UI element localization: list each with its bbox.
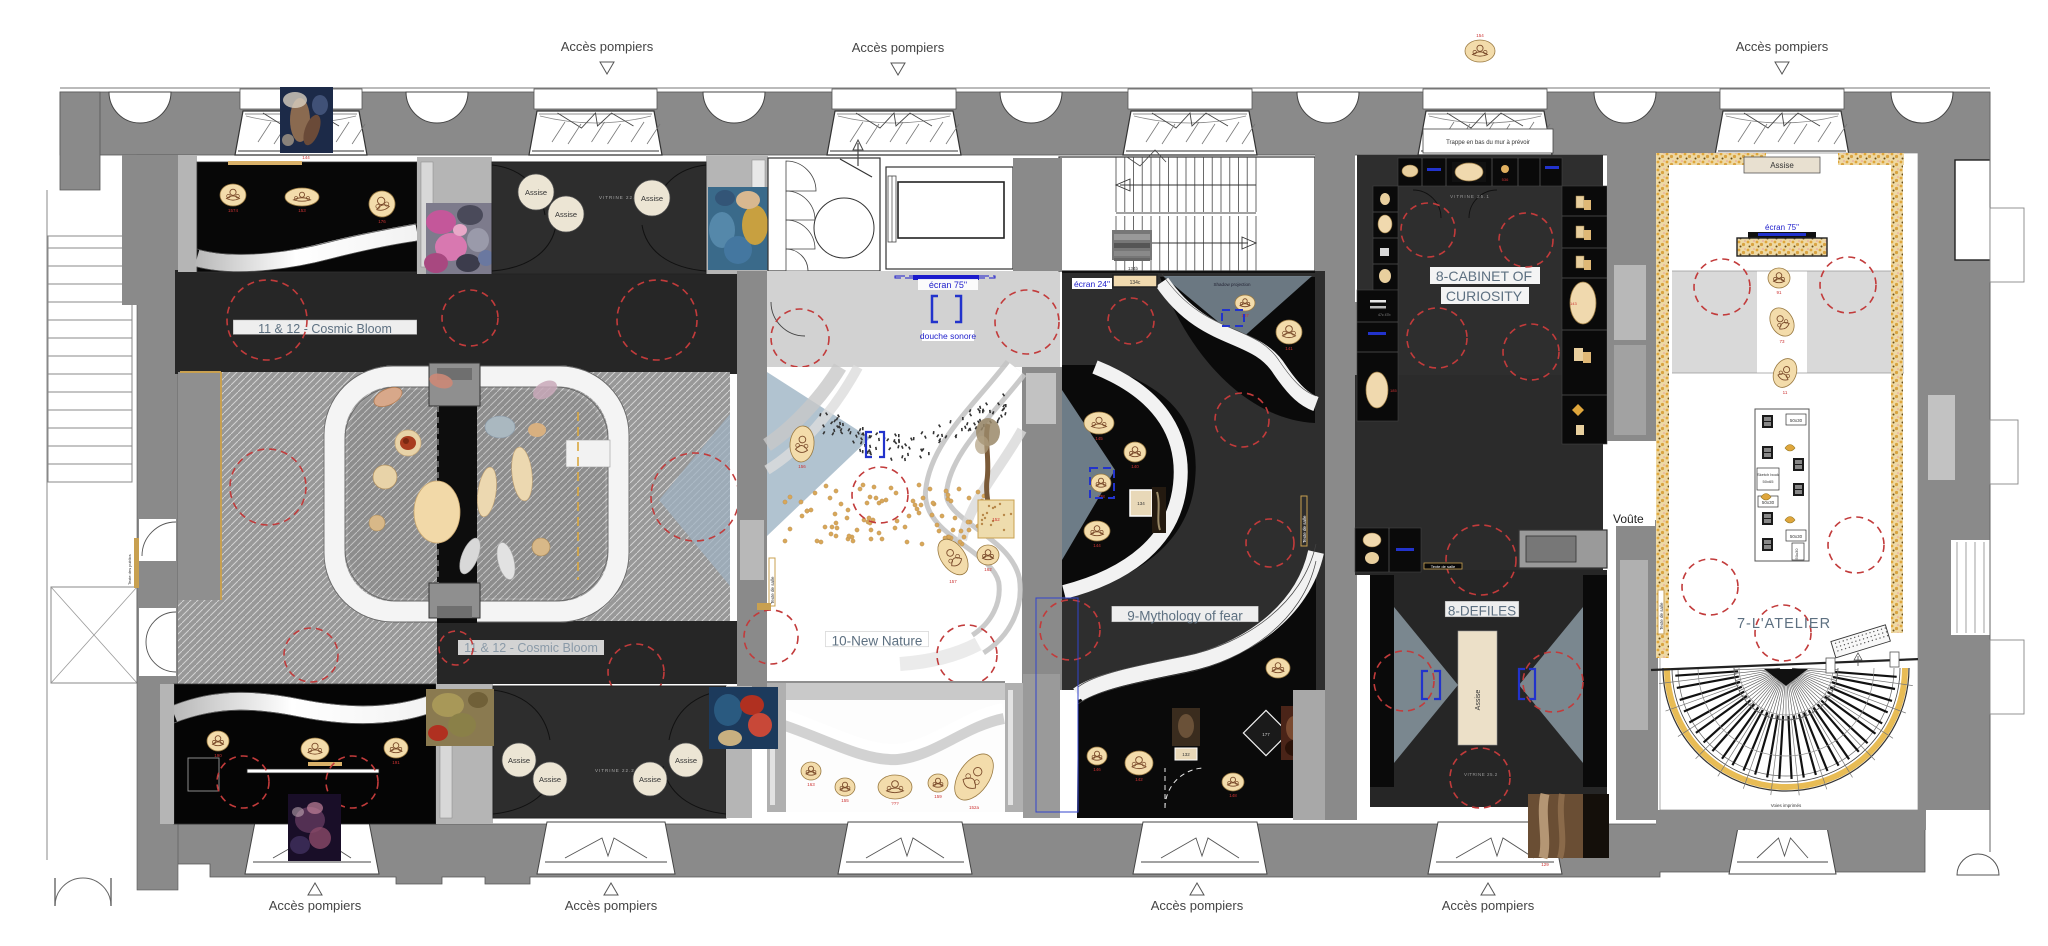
- svg-text:134: 134: [1137, 501, 1145, 506]
- svg-text:Assise: Assise: [675, 756, 697, 765]
- svg-text:163: 163: [807, 782, 815, 787]
- svg-text:162: 162: [984, 567, 992, 572]
- svg-text:50x65: 50x65: [1763, 479, 1775, 484]
- svg-text:144: 144: [302, 155, 310, 160]
- svg-text:Assise: Assise: [641, 194, 663, 203]
- svg-text:7-L'ATELIER: 7-L'ATELIER: [1737, 616, 1831, 632]
- svg-text:536: 536: [1502, 177, 1509, 182]
- svg-text:VITRINE 22.1: VITRINE 22.1: [599, 195, 639, 200]
- svg-text:Shadow projection: Shadow projection: [1213, 282, 1251, 287]
- svg-text:159: 159: [934, 794, 942, 799]
- svg-text:154: 154: [1476, 33, 1484, 38]
- svg-text:153: 153: [298, 208, 306, 213]
- svg-text:Accès pompiers: Accès pompiers: [1442, 898, 1535, 913]
- svg-text:Texte de salle: Texte de salle: [1431, 564, 1456, 569]
- svg-text:47c 47b: 47c 47b: [1378, 313, 1391, 317]
- svg-text:Accès pompiers: Accès pompiers: [1151, 898, 1244, 913]
- svg-text:Assise: Assise: [539, 775, 561, 784]
- svg-text:144: 144: [1093, 543, 1101, 548]
- svg-text:VITRINE 22.2: VITRINE 22.2: [595, 768, 635, 773]
- svg-text:50x30: 50x30: [1790, 418, 1803, 423]
- svg-text:Assise: Assise: [525, 188, 547, 197]
- svg-text:129: 129: [1541, 862, 1549, 867]
- svg-text:Trappe en bas du mur à prévoir: Trappe en bas du mur à prévoir: [1446, 140, 1530, 146]
- svg-text:152: 152: [992, 517, 1000, 522]
- svg-text:190: 190: [214, 753, 222, 758]
- svg-text:Texte de salle: Texte de salle: [1659, 602, 1664, 630]
- svg-text:Assise: Assise: [555, 210, 577, 219]
- svg-text:Assise: Assise: [1475, 690, 1482, 711]
- svg-text:Voûte: Voûte: [1613, 512, 1644, 526]
- svg-text:écran 75": écran 75": [929, 280, 967, 290]
- svg-text:Voies imprimés: Voies imprimés: [1771, 803, 1802, 808]
- svg-text:73: 73: [1779, 339, 1785, 344]
- svg-text:155: 155: [841, 798, 849, 803]
- svg-text:Accès pompiers: Accès pompiers: [561, 39, 654, 54]
- svg-text:écran 75": écran 75": [1765, 223, 1799, 232]
- svg-text:???: ???: [891, 801, 899, 806]
- svg-text:176: 176: [378, 219, 386, 224]
- svg-text:Accès pompiers: Accès pompiers: [269, 898, 362, 913]
- svg-text:Assise: Assise: [639, 775, 661, 784]
- svg-text:134c: 134c: [1130, 280, 1141, 286]
- svg-text:141: 141: [1285, 346, 1293, 351]
- svg-text:10-New Nature: 10-New Nature: [832, 633, 923, 648]
- svg-text:Assise: Assise: [508, 756, 530, 765]
- svg-text:137: 137: [1241, 313, 1249, 318]
- svg-text:douche sonore: douche sonore: [920, 331, 977, 341]
- svg-text:8-CABINET OF: 8-CABINET OF: [1436, 268, 1532, 284]
- svg-text:191: 191: [392, 760, 400, 765]
- svg-text:Accès pompiers: Accès pompiers: [565, 898, 658, 913]
- svg-text:145: 145: [1095, 436, 1103, 441]
- svg-text:11 & 12 - Cosmic Bloom: 11 & 12 - Cosmic Bloom: [258, 322, 392, 336]
- svg-text:152a: 152a: [969, 805, 980, 810]
- svg-text:Sketch book: Sketch book: [1757, 472, 1779, 477]
- svg-text:8-DEFILES: 8-DEFILES: [1448, 603, 1516, 618]
- svg-text:VITRINE 25.2: VITRINE 25.2: [1464, 772, 1498, 777]
- svg-text:Assise: Assise: [1770, 161, 1794, 170]
- svg-text:177: 177: [1262, 732, 1270, 737]
- svg-text:157: 157: [949, 579, 957, 584]
- svg-text:50x30: 50x30: [1790, 534, 1803, 539]
- svg-text:140: 140: [1131, 464, 1139, 469]
- svg-text:9-Mythology of fear: 9-Mythology of fear: [1127, 608, 1243, 623]
- svg-text:134b: 134b: [1128, 266, 1139, 271]
- svg-text:50x30: 50x30: [1794, 548, 1799, 560]
- svg-text:146: 146: [1093, 767, 1101, 772]
- svg-text:Texte des publics: Texte des publics: [127, 554, 132, 585]
- svg-text:1574: 1574: [228, 208, 239, 213]
- svg-text:Accès pompiers: Accès pompiers: [1736, 39, 1829, 54]
- svg-text:148: 148: [1229, 793, 1237, 798]
- svg-text:50x30: 50x30: [1762, 500, 1775, 505]
- svg-text:143: 143: [1570, 301, 1577, 306]
- svg-text:91: 91: [1776, 290, 1782, 295]
- svg-text:132: 132: [1182, 752, 1190, 757]
- svg-text:VITRINE 25.1: VITRINE 25.1: [1450, 194, 1490, 199]
- svg-text:écran 24": écran 24": [1074, 279, 1110, 289]
- svg-text:11: 11: [1783, 390, 1788, 395]
- svg-text:Accès pompiers: Accès pompiers: [852, 40, 945, 55]
- svg-text:185: 185: [1390, 388, 1397, 393]
- svg-text:CURIOSITY: CURIOSITY: [1446, 288, 1523, 304]
- svg-text:142: 142: [1135, 777, 1143, 782]
- svg-text:156: 156: [798, 464, 806, 469]
- svg-text:11 & 12 - Cosmic Bloom: 11 & 12 - Cosmic Bloom: [464, 641, 598, 655]
- svg-text:Texte de salle: Texte de salle: [770, 576, 775, 604]
- svg-text:Texte de salle: Texte de salle: [1302, 515, 1307, 543]
